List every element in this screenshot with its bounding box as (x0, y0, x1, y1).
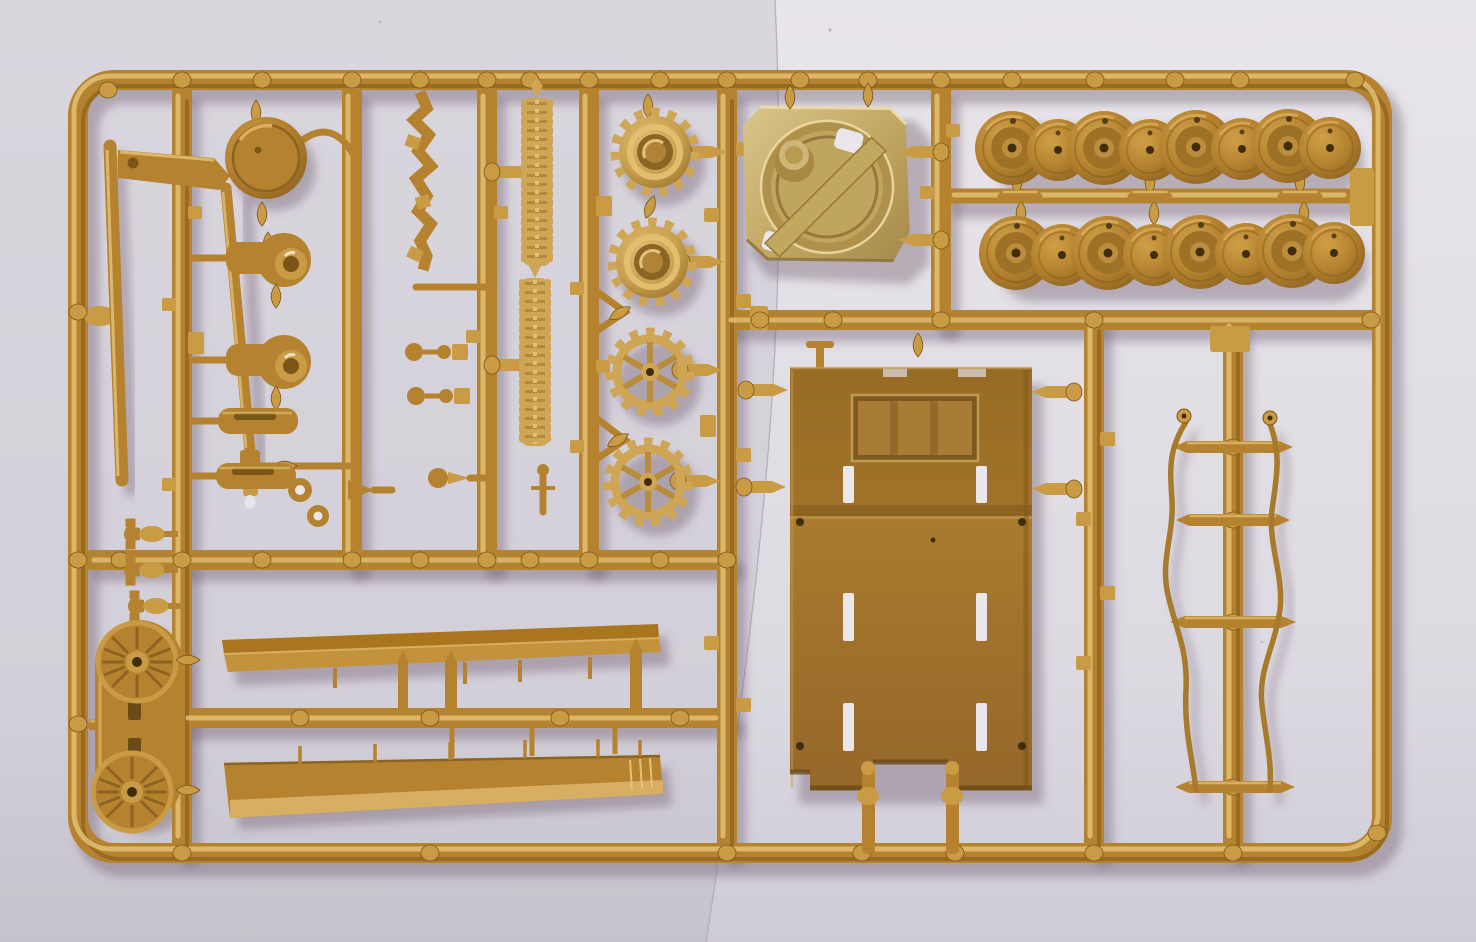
hull-grille-recess (852, 395, 978, 461)
dust-speck (379, 21, 382, 24)
photo-stage: Injection-molded plastic model kit sprue… (0, 0, 1476, 942)
dust-speck (1261, 641, 1264, 644)
tow-hooks: Tow shackles (124, 521, 182, 619)
dust-speck (828, 28, 831, 31)
sprue-photo: Injection-molded plastic model kit sprue… (0, 0, 1476, 942)
turret-ring-base: Turret ring base plate with filler cylin… (742, 102, 910, 266)
